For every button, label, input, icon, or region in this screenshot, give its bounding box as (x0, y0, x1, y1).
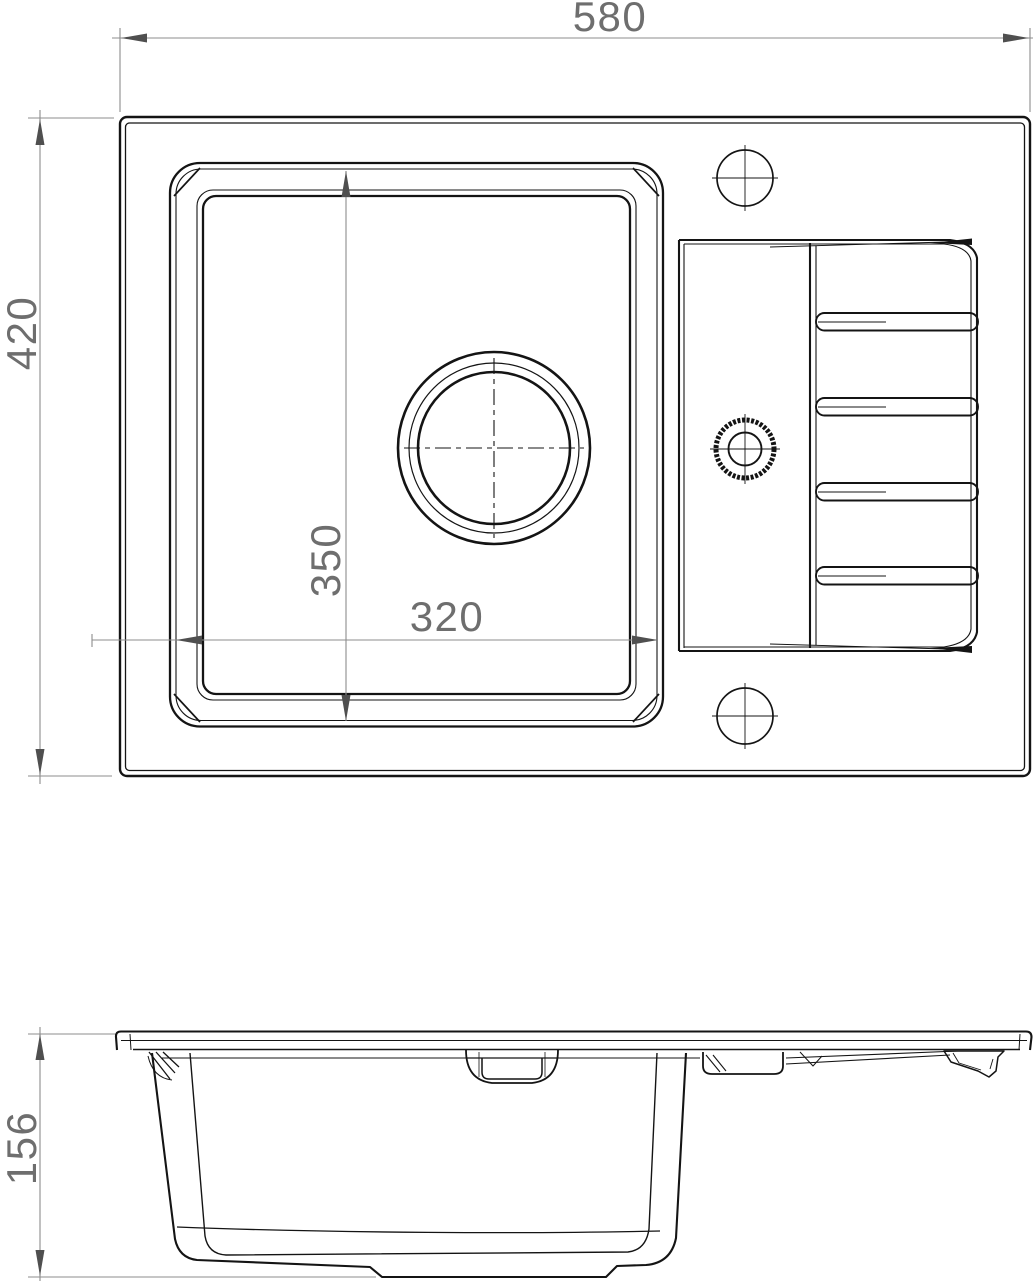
drainboard-rib (816, 313, 978, 331)
drainboard-outline (679, 240, 977, 651)
drainboard (679, 239, 978, 654)
drainboard-rib (816, 398, 978, 416)
top-view (120, 117, 1030, 776)
drawing-canvas: 580 420 350 320 156 (0, 0, 1036, 1283)
sink-outline (120, 117, 1030, 776)
drainboard-underside (786, 1051, 958, 1066)
dim-overall-width: 580 (112, 0, 1033, 112)
dimensions: 580 420 350 320 156 (0, 0, 1033, 1281)
dim-label-580: 580 (573, 0, 648, 40)
dim-overall-height: 156 (0, 1027, 376, 1281)
dim-label-320: 320 (410, 593, 485, 640)
dim-bowl-depth: 350 (302, 171, 351, 721)
drainboard-rib (816, 483, 978, 501)
small-drain-hole (710, 414, 780, 484)
faucet-hole-bottom (712, 683, 778, 749)
dim-overall-depth: 420 (0, 110, 114, 784)
mounting-clip-right (944, 1051, 1004, 1077)
faucet-hole-top (712, 145, 778, 211)
drain-hole (398, 352, 590, 544)
drain-channel-box (703, 1052, 783, 1074)
dim-label-350: 350 (302, 523, 349, 598)
side-view (116, 1032, 1032, 1278)
sink-technical-drawing: 580 420 350 320 156 (0, 0, 1036, 1283)
bowl-bottom-throughline (177, 1227, 660, 1233)
dim-bowl-width: 320 (92, 593, 658, 647)
dim-label-156: 156 (0, 1111, 45, 1186)
overflow-fitting (466, 1050, 558, 1083)
dim-label-420: 420 (0, 296, 45, 371)
bowl-profile (152, 1053, 686, 1277)
drainboard-rib (816, 567, 978, 585)
drainboard-outline-inner (684, 244, 971, 647)
